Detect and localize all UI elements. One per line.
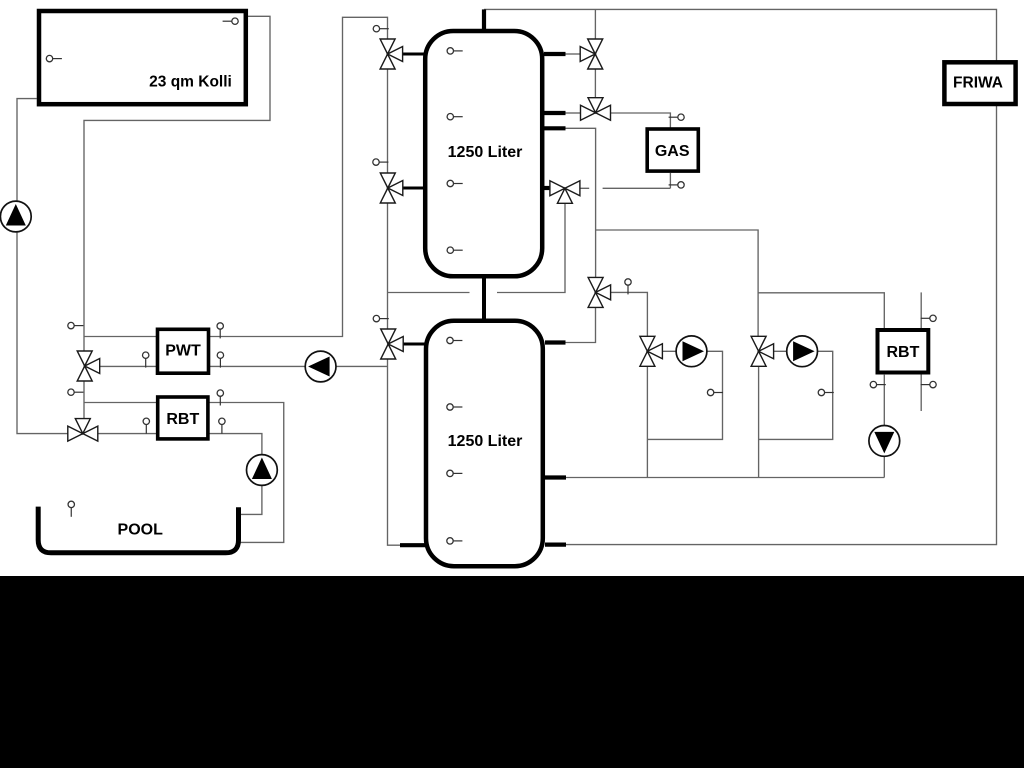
svg-text:1250 Liter: 1250 Liter [448,144,523,161]
svg-text:RBT: RBT [886,344,919,361]
svg-text:PWT: PWT [165,343,201,360]
svg-text:RBT: RBT [166,411,199,428]
svg-text:POOL: POOL [118,522,164,539]
svg-text:23 qm Kolli: 23 qm Kolli [149,74,232,91]
svg-text:1250 Liter: 1250 Liter [448,433,523,450]
svg-text:FRIWA: FRIWA [953,75,1003,92]
svg-text:GAS: GAS [655,143,690,160]
